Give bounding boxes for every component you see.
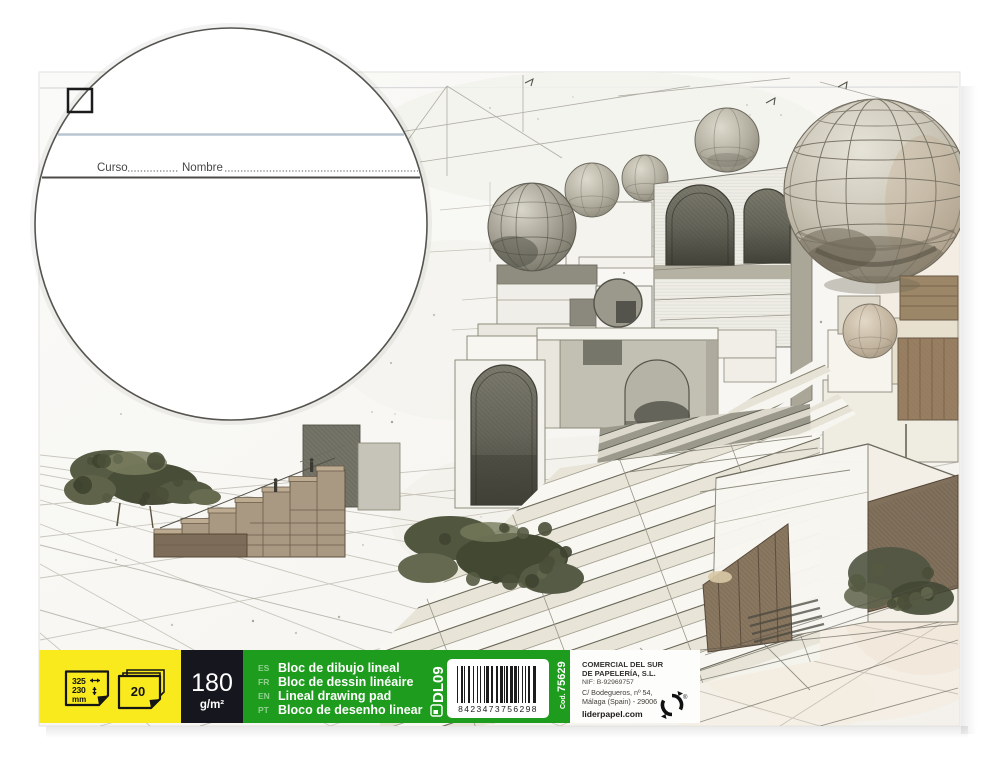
svg-text:20: 20: [131, 684, 145, 699]
svg-text:Bloc de dibujo lineal: Bloc de dibujo lineal: [278, 661, 400, 675]
svg-text:DL09: DL09: [430, 666, 447, 703]
svg-text:Lineal drawing pad: Lineal drawing pad: [278, 689, 391, 703]
svg-text:g/m²: g/m²: [200, 699, 224, 711]
svg-text:230: 230: [72, 685, 86, 695]
svg-text:Málaga (Spain) - 29006: Málaga (Spain) - 29006: [582, 697, 657, 706]
svg-text:FR: FR: [258, 677, 269, 687]
svg-text:®: ®: [683, 694, 688, 701]
svg-text:PT: PT: [258, 705, 270, 715]
svg-text:180: 180: [191, 669, 233, 697]
svg-text:Bloco de desenho linear: Bloco de desenho linear: [278, 703, 423, 717]
svg-text:ES: ES: [258, 663, 270, 673]
svg-text:EN: EN: [258, 691, 270, 701]
svg-text:75629: 75629: [556, 661, 568, 692]
svg-text:Cod.: Cod.: [560, 693, 567, 709]
svg-text:mm: mm: [72, 695, 86, 704]
svg-text:COMERCIAL DEL SUR: COMERCIAL DEL SUR: [582, 660, 664, 669]
svg-text:Curso: Curso: [97, 162, 128, 174]
svg-text:Nombre: Nombre: [182, 162, 223, 174]
svg-text:liderpapel.com: liderpapel.com: [582, 709, 643, 719]
svg-text:8423473756298: 8423473756298: [458, 704, 538, 714]
svg-text:C/ Bodegueros, nº 54,: C/ Bodegueros, nº 54,: [582, 688, 653, 697]
svg-text:NIF: B-92969757: NIF: B-92969757: [582, 679, 634, 686]
svg-text:Bloc de dessin linéaire: Bloc de dessin linéaire: [278, 675, 414, 689]
svg-text:DE PAPELERÍA, S.L.: DE PAPELERÍA, S.L.: [582, 669, 656, 678]
